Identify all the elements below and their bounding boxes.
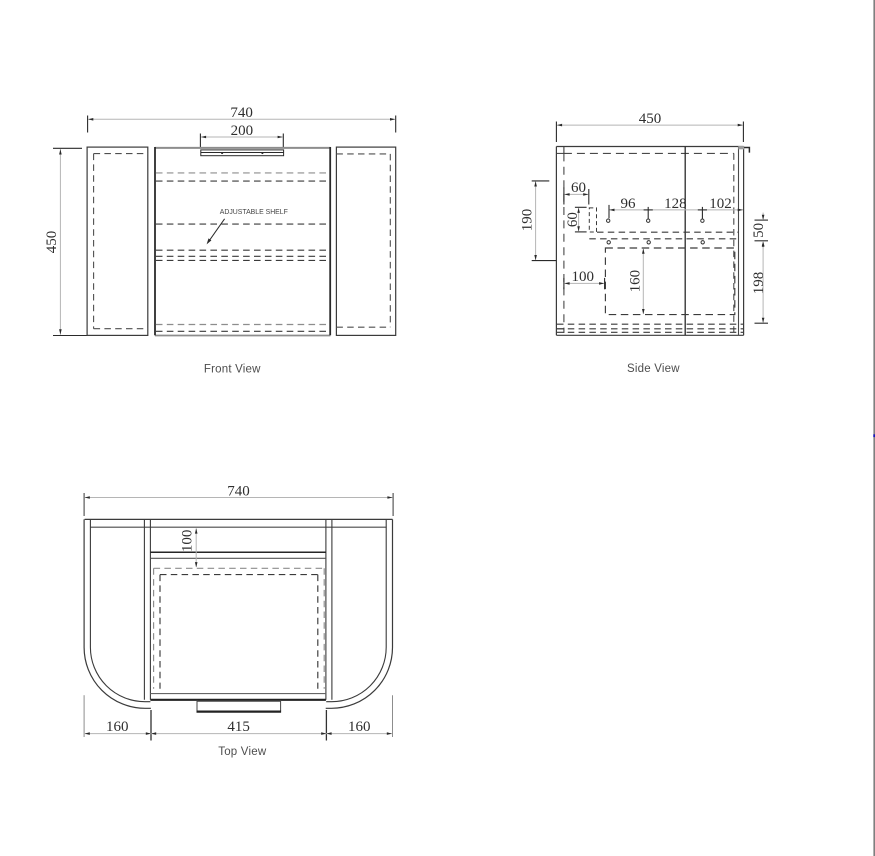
svg-text:160: 160 [628, 270, 644, 293]
svg-text:Top View: Top View [218, 746, 267, 758]
svg-text:198: 198 [751, 272, 767, 295]
svg-text:50: 50 [751, 223, 767, 238]
svg-text:100: 100 [179, 530, 195, 553]
svg-text:60: 60 [571, 180, 586, 196]
svg-text:Side View: Side View [627, 363, 680, 375]
svg-text:102: 102 [709, 196, 732, 212]
svg-text:160: 160 [348, 719, 371, 735]
svg-text:Front View: Front View [204, 364, 261, 376]
svg-text:96: 96 [621, 196, 637, 212]
svg-text:190: 190 [519, 209, 535, 232]
svg-text:128: 128 [664, 196, 687, 212]
svg-text:450: 450 [44, 231, 60, 254]
svg-text:100: 100 [572, 269, 595, 285]
svg-text:740: 740 [227, 484, 250, 500]
svg-text:740: 740 [230, 105, 253, 121]
svg-text:415: 415 [227, 719, 250, 735]
svg-text:450: 450 [639, 111, 662, 127]
svg-text:200: 200 [231, 123, 254, 139]
svg-text:ADJUSTABLE SHELF: ADJUSTABLE SHELF [220, 209, 288, 216]
svg-text:160: 160 [106, 719, 129, 735]
svg-text:60: 60 [565, 212, 581, 227]
